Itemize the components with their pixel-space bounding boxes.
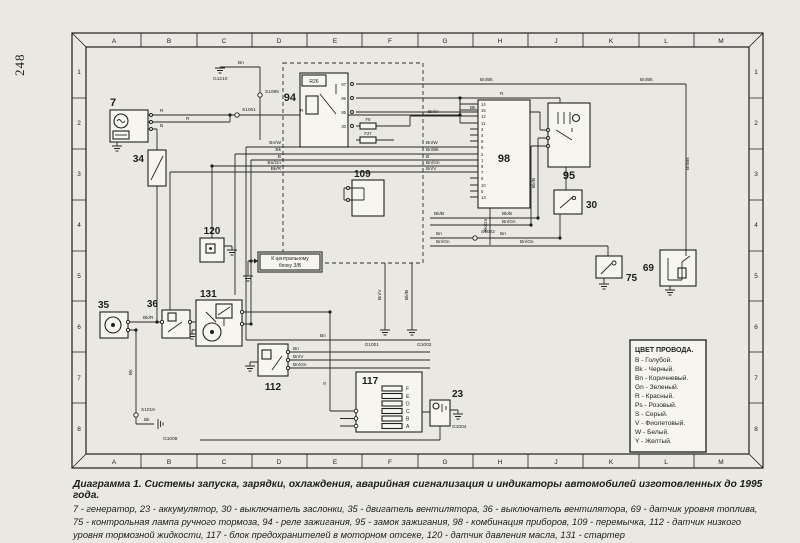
grid-row: 2: [754, 120, 758, 127]
grid-col: B: [167, 38, 171, 45]
grid-col: E: [333, 38, 338, 45]
wire-label: Bn: [500, 231, 506, 237]
component-ignition-switch: 95: [547, 103, 591, 182]
wire-label: B: [160, 123, 163, 129]
grid-col: D: [277, 459, 282, 466]
wire-label: Bk/Gn: [483, 218, 489, 232]
component-number: 35: [98, 300, 110, 311]
note-text: К центральному: [271, 256, 309, 262]
grid-col: L: [664, 459, 668, 466]
wire-label: Bn/Bk: [480, 77, 493, 83]
wire-label: Bk: [128, 369, 134, 375]
legend-title: ЦВЕТ ПРОВОДА.: [635, 347, 693, 354]
ground-icon: [407, 330, 417, 335]
wire-label: Bk/B: [502, 211, 512, 217]
ground-icon: [453, 414, 463, 419]
fusebox-letter: C: [406, 409, 410, 415]
figure-caption: Диаграмма 1. Системы запуска, зарядки, о…: [73, 479, 770, 543]
grid-col: E: [333, 459, 338, 466]
component-number: 30: [586, 200, 598, 211]
wire-label: Bn/Bk: [640, 77, 653, 83]
wire-label: Bn/W: [269, 140, 281, 146]
cluster-pin: 14: [481, 102, 486, 107]
wire-label: B: [278, 154, 281, 160]
component-cluster: 98 14 15 12 11 3 4 8 9 2 1 9 7 6 10 5 13: [470, 100, 530, 208]
grid-row: 2: [77, 120, 81, 127]
cluster-pin: 13: [481, 195, 486, 200]
legend-entry: Y - Желтый.: [635, 437, 672, 445]
caption-body: 7 - генератор, 23 - аккумулятор, 30 - вы…: [73, 503, 770, 543]
wire-label: Bn/Gn: [520, 239, 534, 245]
fusebox-letter: D: [406, 402, 410, 408]
fuse-label: F27: [364, 131, 372, 136]
ground-icon: [243, 276, 253, 281]
grid-col: D: [277, 38, 282, 45]
relay-name: R26: [309, 79, 318, 85]
grid-col: C: [222, 38, 227, 45]
cluster-pin: 15: [481, 108, 486, 113]
legend-entry: V - Фиолетовый.: [635, 419, 685, 427]
ground-icon: [227, 250, 237, 255]
component-fan-motor: 35: [98, 300, 130, 338]
cluster-pin: 11: [481, 121, 486, 126]
grid-col: M: [718, 459, 723, 466]
grid-row: 7: [77, 375, 81, 382]
wire-label: Bn/W: [426, 140, 438, 146]
wire-label: Bn: [293, 346, 299, 352]
wire-label: Bk: [144, 417, 150, 423]
wire-label: Bn/V: [428, 109, 439, 115]
wire-label: Bn: [320, 333, 326, 339]
caption-title: Диаграмма 1. Системы запуска, зарядки, о…: [73, 479, 770, 501]
component-number: 75: [626, 273, 638, 284]
ground-label: G1210: [213, 76, 228, 82]
legend-entry: Bk - Черный.: [635, 365, 674, 373]
grid-col: A: [112, 38, 117, 45]
grid-row: 5: [754, 273, 758, 280]
wire-label: Bn/Gn: [436, 239, 450, 245]
component-handbrake-lamp: 75: [596, 256, 638, 284]
grid-row: 8: [77, 426, 81, 433]
grid-col: F: [388, 38, 392, 45]
wire-label: Bn/V: [377, 289, 383, 300]
wire-label: Bn/Gn: [502, 219, 516, 225]
component-generator: 7: [110, 97, 153, 142]
ground-icon: [665, 290, 675, 295]
component-number: 95: [563, 170, 575, 182]
connector-label: S1016: [141, 407, 155, 413]
wire-label: R: [300, 108, 304, 114]
component-flap-switch: 30: [554, 190, 598, 214]
grid-row: 6: [77, 324, 81, 331]
fuse-label: F8: [366, 117, 372, 122]
wire-label: Bn/Bk: [685, 157, 691, 170]
component-number: 117: [362, 376, 379, 387]
component-fan-switch: 36: [147, 299, 192, 338]
component-number: 36: [147, 299, 159, 310]
wire-label: Bk/B: [404, 290, 410, 300]
component-number: 98: [498, 153, 510, 165]
wire-label: Bk: [275, 147, 281, 153]
relay-pin: 85: [341, 110, 346, 115]
relay-pin: 30: [341, 124, 346, 129]
grid-col: H: [498, 459, 503, 466]
ground-label: G1008: [163, 436, 178, 442]
ground-label: G1004: [452, 424, 467, 430]
grid-row: 3: [754, 171, 758, 178]
legend-entry: B - Голубой.: [635, 356, 672, 364]
connector-s1061: [235, 113, 239, 117]
legend-entry: Gn - Зеленый.: [635, 383, 679, 391]
component-oil-sensor: 120: [200, 226, 224, 262]
wire-label: Bn/Gn: [426, 160, 440, 166]
legend-entry: S - Серый.: [635, 410, 668, 418]
note-text: блоку З/В: [279, 263, 302, 269]
fuse-f8: F8: [360, 117, 376, 129]
wire-label: Bk/R: [143, 315, 154, 321]
connector-label: S1085: [265, 89, 279, 95]
relay-pin: 86: [341, 96, 346, 101]
component-number: 7: [110, 97, 116, 109]
wire-label: Bn: [238, 60, 244, 66]
wire-label: R: [160, 108, 164, 114]
grid-col: C: [222, 459, 227, 466]
component-fuel-sensor: 69: [643, 250, 696, 286]
component-number: 131: [200, 289, 217, 300]
component-brake-fluid-sensor: 112: [258, 344, 290, 393]
grid-col: J: [554, 459, 557, 466]
wire-label: R: [500, 91, 504, 97]
grid-row: 1: [77, 69, 81, 76]
connector-s1022: [473, 236, 477, 240]
grid-row: 7: [754, 375, 758, 382]
connector-s1016: [134, 413, 138, 417]
legend-entry: R - Красный.: [635, 392, 674, 400]
component-ignition-relay: 94 R26 87 86 85 30: [284, 73, 354, 147]
wire-label: Bn/V: [426, 166, 437, 172]
connector-label: S1061: [242, 107, 256, 113]
ground-icon: [112, 146, 122, 151]
grid-col: M: [718, 38, 723, 45]
component-number: 69: [643, 263, 655, 274]
ground-icon: [245, 366, 255, 371]
wire-label: Bn/Gn: [293, 362, 307, 368]
grid-row: 6: [754, 324, 758, 331]
wire-label: S: [322, 382, 328, 385]
wire-label: Bn/Gn: [267, 160, 281, 166]
legend-entry: W - Белый.: [635, 428, 669, 436]
component-jumper: 109: [347, 169, 385, 216]
grid-row: 4: [754, 222, 758, 229]
grid-col: L: [664, 38, 668, 45]
note-box: К центральному блоку З/В: [243, 252, 322, 281]
fuse-f27: F27: [360, 131, 376, 143]
ground-icon: [380, 330, 390, 335]
wire-label: B: [426, 154, 429, 160]
ground-icon: [599, 284, 609, 289]
relay-pin: 87: [341, 82, 346, 87]
component-number: 120: [204, 226, 221, 237]
component-number: 34: [133, 154, 145, 165]
wire-label: Bn: [436, 231, 442, 237]
component-resistor: 34: [133, 150, 166, 186]
grid-col: H: [498, 38, 503, 45]
legend-entry: Ps - Розовый.: [635, 401, 677, 409]
component-number: 109: [354, 169, 371, 180]
grid-col: G: [442, 459, 447, 466]
grid-row: 8: [754, 426, 758, 433]
component-starter: 131: [196, 289, 244, 346]
grid-col: K: [609, 38, 614, 45]
grid-col: F: [388, 459, 392, 466]
ground-label: G1002: [417, 342, 432, 348]
wire-color-legend: ЦВЕТ ПРОВОДА. B - Голубой. Bk - Черный. …: [630, 340, 706, 452]
wiring-diagram: A B C D E F G H J K L M A B C D E F G H …: [0, 0, 800, 475]
grid-col: K: [609, 459, 614, 466]
wire-label: Bk/B: [434, 211, 444, 217]
grid-col: B: [167, 459, 171, 466]
grid-col: G: [442, 38, 447, 45]
connector-s1085: [258, 93, 262, 97]
cluster-pin: 10: [481, 183, 486, 188]
wire-label: R: [186, 116, 190, 122]
ground-icon: [215, 68, 225, 73]
grid-row: 5: [77, 273, 81, 280]
grid-col: J: [554, 38, 557, 45]
component-number: 94: [284, 92, 297, 104]
legend-entry: Bn - Коричневый.: [635, 374, 688, 382]
wire-label: Bn/Bk: [426, 147, 439, 153]
fusebox-letter: F: [406, 387, 409, 393]
wire-label: Bk/R: [271, 166, 282, 172]
wire-label: Bk/B: [531, 178, 537, 188]
grid-row: 3: [77, 171, 81, 178]
grid-row: 4: [77, 222, 81, 229]
cluster-pin: 12: [481, 114, 486, 119]
ground-icon: [158, 419, 163, 429]
wire-label: Bn/V: [293, 354, 304, 360]
component-fusebox: 117 F E D C B A: [354, 372, 422, 432]
ground-label: G1001: [365, 342, 380, 348]
component-battery: 23: [430, 389, 464, 426]
component-number: 23: [452, 389, 464, 400]
grid-row: 1: [754, 69, 758, 76]
component-number: 112: [265, 382, 282, 393]
wire-label: Bk: [470, 105, 476, 111]
grid-col: A: [112, 459, 117, 466]
